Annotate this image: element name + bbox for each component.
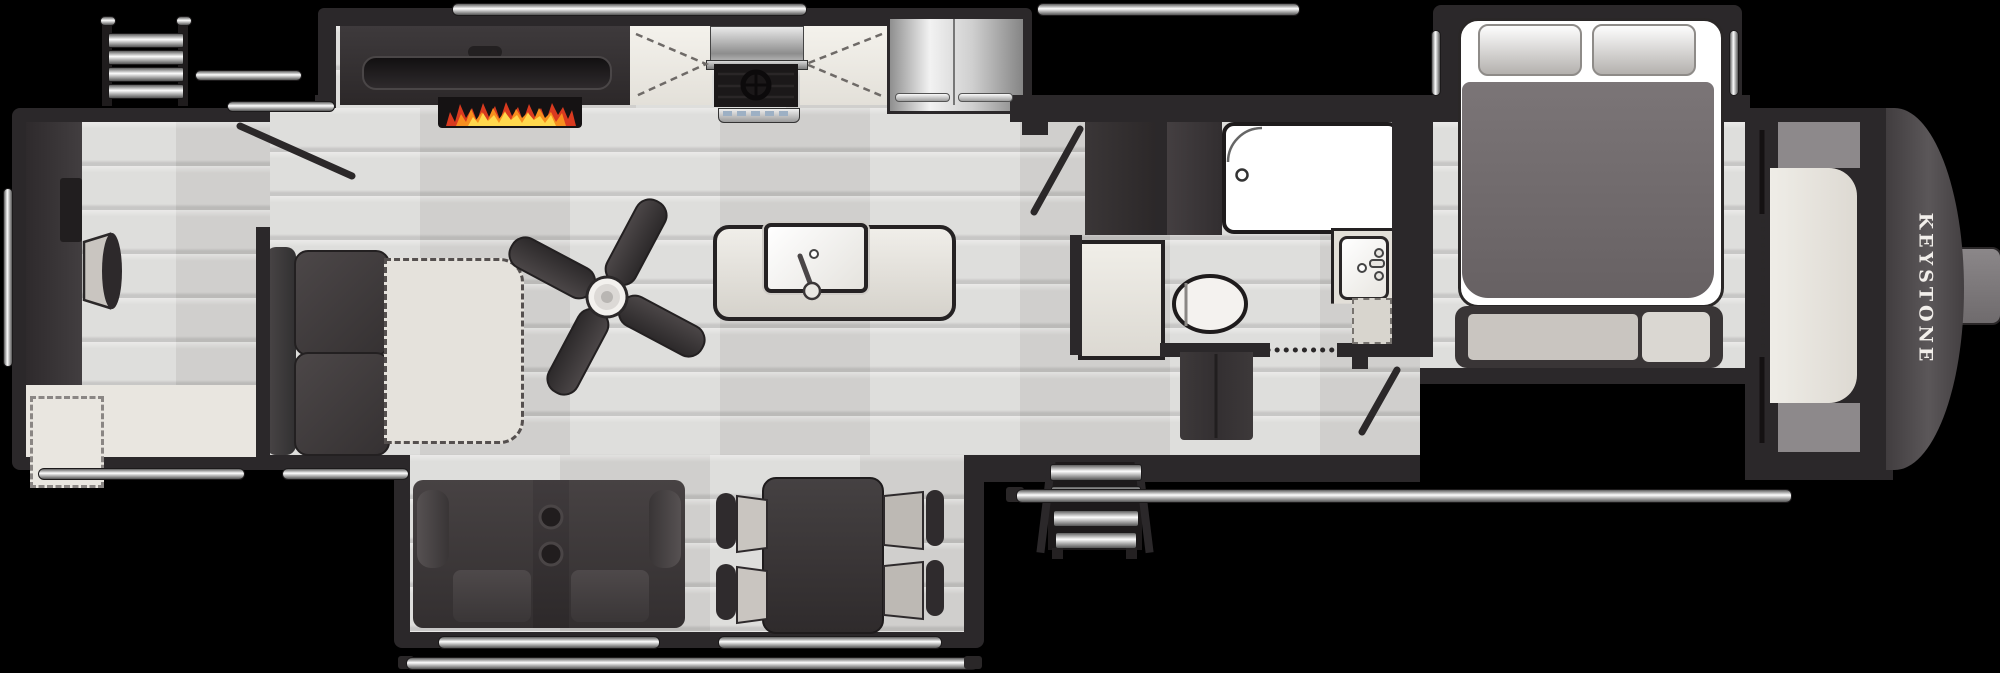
vanity-sink — [1339, 236, 1389, 300]
kitchen-counter-right — [800, 26, 887, 105]
right-awning-rail — [1016, 489, 1792, 503]
bedroom-bottom-wall — [1420, 368, 1750, 384]
pillow — [1478, 24, 1582, 76]
wall-stub — [1352, 357, 1368, 369]
pillow — [1592, 24, 1696, 76]
theater-seat — [294, 250, 390, 356]
living-half-wall — [256, 227, 270, 470]
front-closet-floor — [1770, 168, 1857, 403]
refrigerator-handle — [958, 93, 1013, 102]
bench-cushion — [1468, 314, 1638, 360]
refrigerator-door-split — [953, 19, 955, 105]
front-closet-shelf — [1778, 403, 1860, 452]
range-vent — [718, 108, 800, 123]
linen-wall — [1070, 235, 1082, 355]
bed-slide-handle — [1729, 30, 1739, 96]
fireplace — [438, 97, 582, 128]
step-tread — [1055, 532, 1137, 549]
pantry-cabinet — [1085, 120, 1155, 235]
grab-handle — [195, 70, 302, 81]
awning-rail — [452, 3, 807, 16]
wardrobe-cabinet — [1167, 120, 1222, 235]
step-foot — [1052, 548, 1063, 559]
sofa-armrest — [649, 490, 681, 568]
sofa-cushion — [453, 570, 531, 622]
rear-grab-bar — [3, 188, 13, 367]
bath-top-wall — [1010, 95, 1420, 122]
step-tread — [1053, 510, 1139, 527]
ladder-cap — [100, 16, 116, 26]
refrigerator-handle — [895, 93, 950, 102]
theater-recline-footprint — [384, 258, 524, 444]
theater-seat — [294, 352, 390, 456]
vanity-lower-cabinet — [1352, 298, 1392, 344]
front-cap: KEYSTONE — [1886, 108, 1964, 470]
range-cooktop — [714, 64, 798, 107]
kitchen-corner-wall — [1022, 95, 1048, 135]
bath-bottom-wall-right — [1337, 343, 1420, 357]
step-tread — [1050, 464, 1142, 481]
bath-bedroom-wall — [1392, 95, 1433, 357]
bed-blanket — [1462, 82, 1714, 298]
tv-icon — [362, 56, 612, 90]
slide-trim-bar — [282, 468, 409, 480]
lower-awning-rail — [406, 657, 978, 670]
awning-rail — [1037, 3, 1300, 16]
sofa-cushion — [571, 570, 649, 622]
entry-assist-handle — [227, 101, 335, 112]
floorplan-canvas: KEYSTONE — [0, 0, 2000, 673]
ladder-cap — [176, 16, 192, 26]
dinette-table — [762, 477, 884, 634]
sofa-console — [533, 480, 569, 628]
linen-closet — [1078, 240, 1165, 360]
front-closet-shelf — [1778, 122, 1860, 168]
rear-tv — [60, 178, 82, 242]
sofa-armrest — [417, 490, 449, 568]
slide-trim-bar — [438, 636, 660, 649]
kitchen-counter-left — [630, 26, 712, 105]
rail-end-cap — [964, 656, 982, 669]
hall-cabinet — [1180, 352, 1253, 440]
ladder-rung — [108, 50, 184, 65]
shower — [1222, 122, 1400, 234]
bench-cushion — [1642, 312, 1710, 362]
bed-slide-handle — [1431, 30, 1441, 96]
step-foot — [1126, 548, 1137, 559]
ladder-rung — [108, 84, 184, 99]
ladder-rung — [108, 33, 184, 48]
ladder-rung — [108, 67, 184, 82]
theater-seating-back — [266, 247, 296, 455]
brand-label: KEYSTONE — [1914, 213, 1936, 366]
island-sink — [764, 223, 868, 293]
rear-entertainment-cabinet — [26, 122, 82, 385]
slide-trim-bar — [718, 636, 942, 649]
slide-trim-bar — [38, 468, 245, 480]
pantry-divider-wall — [1155, 120, 1167, 235]
